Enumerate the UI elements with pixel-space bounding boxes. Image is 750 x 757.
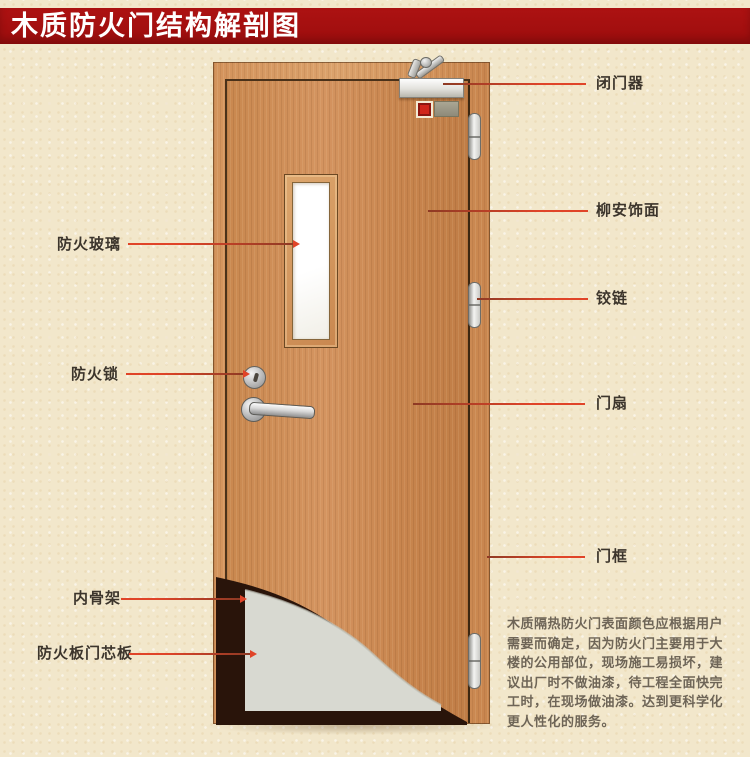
description-line: 工时，在现场做油漆。达到更科学化: [507, 692, 719, 712]
leader-fire-glass: [128, 243, 294, 245]
arrow-icon: [250, 650, 257, 658]
cutaway-section: [214, 563, 491, 725]
label-door-closer: 闭门器: [596, 74, 644, 94]
door-illustration: [213, 62, 490, 724]
label-veneer: 柳安饰面: [596, 201, 660, 221]
arrow-icon: [293, 240, 300, 248]
leader-fire-lock: [126, 373, 244, 375]
fire-glass-window: [284, 174, 338, 348]
core-board-shape: [245, 590, 441, 711]
page-title: 木质防火门结构解剖图: [0, 13, 301, 40]
leader-core-board: [129, 653, 251, 655]
description-line: 楼的公用部位，现场施工易损坏，建: [507, 653, 719, 673]
arrow-icon: [243, 370, 250, 378]
door-closer-body: [399, 78, 464, 98]
leader-veneer: [428, 210, 588, 212]
leader-door-frame: [487, 556, 585, 558]
label-core-board: 防火板门芯板: [37, 644, 133, 664]
label-fire-lock: 防火锁: [71, 365, 119, 385]
label-inner-frame: 内骨架: [73, 589, 121, 609]
door-closer-pivot: [420, 57, 432, 68]
fire-glass-pane: [292, 182, 330, 340]
description-line: 更人性化的服务。: [507, 712, 719, 732]
leader-door-leaf: [413, 403, 585, 405]
hinge-middle: [468, 282, 481, 328]
label-hinge: 铰链: [596, 289, 628, 309]
description-line: 木质隔热防火门表面颜色应根据用户: [507, 614, 719, 634]
label-door-leaf: 门扇: [596, 394, 628, 414]
description-line: 需要而确定，因为防火门主要用于大: [507, 634, 719, 654]
description-line: 议出厂时不做油漆，待工程全面快完: [507, 673, 719, 693]
leader-inner-frame: [121, 598, 241, 600]
leader-door-closer: [443, 83, 586, 85]
hinge-top: [468, 113, 481, 160]
label-fire-glass: 防火玻璃: [57, 235, 121, 255]
title-banner: 木质防火门结构解剖图: [0, 8, 750, 44]
label-sticker: [434, 101, 459, 117]
label-door-frame: 门框: [596, 547, 628, 567]
description-text: 木质隔热防火门表面颜色应根据用户 需要而确定，因为防火门主要用于大 楼的公用部位…: [507, 614, 719, 731]
infographic-canvas: 木质防火门结构解剖图 防火玻璃 防火锁 内骨架 防火板门芯板: [0, 0, 750, 757]
arrow-icon: [240, 595, 247, 603]
alarm-indicator: [416, 101, 433, 118]
leader-hinge: [477, 298, 588, 300]
